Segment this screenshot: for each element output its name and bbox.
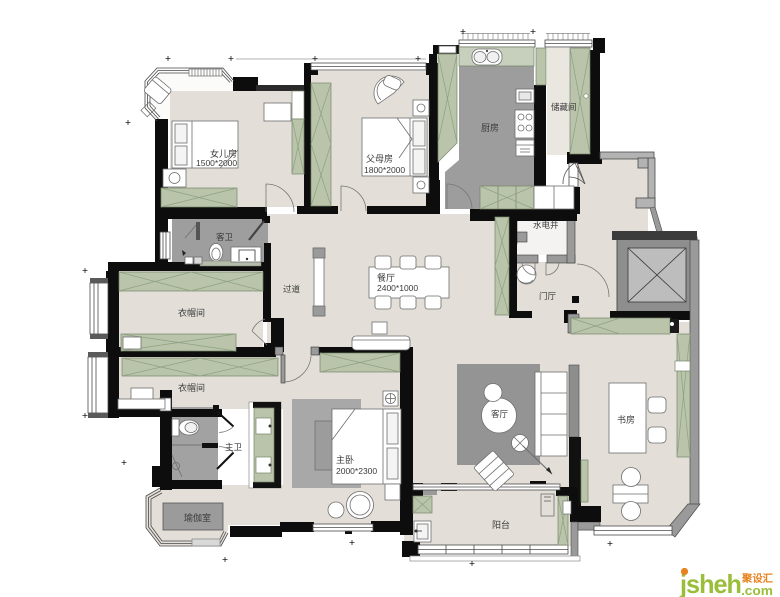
svg-text:.com: .com: [741, 584, 773, 597]
svg-text:瑜伽室: 瑜伽室: [184, 512, 211, 523]
svg-text:衣帽间: 衣帽间: [178, 382, 205, 393]
svg-text:过道: 过道: [283, 284, 301, 294]
svg-text:储藏间: 储藏间: [551, 102, 577, 112]
svg-text:jsheh: jsheh: [679, 569, 741, 597]
svg-text:门厅: 门厅: [539, 291, 557, 301]
svg-text:衣帽间: 衣帽间: [178, 307, 205, 318]
svg-text:父母房: 父母房: [366, 153, 393, 164]
svg-text:书房: 书房: [617, 414, 635, 425]
svg-text:客厅: 客厅: [491, 409, 509, 419]
svg-text:水电井: 水电井: [533, 220, 559, 230]
svg-text:厨房: 厨房: [481, 122, 499, 133]
svg-text:2400*1000: 2400*1000: [377, 283, 418, 293]
svg-text:餐厅: 餐厅: [377, 272, 395, 283]
svg-text:1800*2000: 1800*2000: [364, 165, 405, 175]
svg-text:客卫: 客卫: [216, 232, 234, 242]
svg-text:阳台: 阳台: [492, 519, 510, 530]
svg-text:1500*2000: 1500*2000: [196, 158, 237, 168]
svg-text:2000*2300: 2000*2300: [336, 466, 377, 476]
svg-text:主卫: 主卫: [225, 442, 243, 452]
svg-text:主卧: 主卧: [336, 454, 354, 465]
